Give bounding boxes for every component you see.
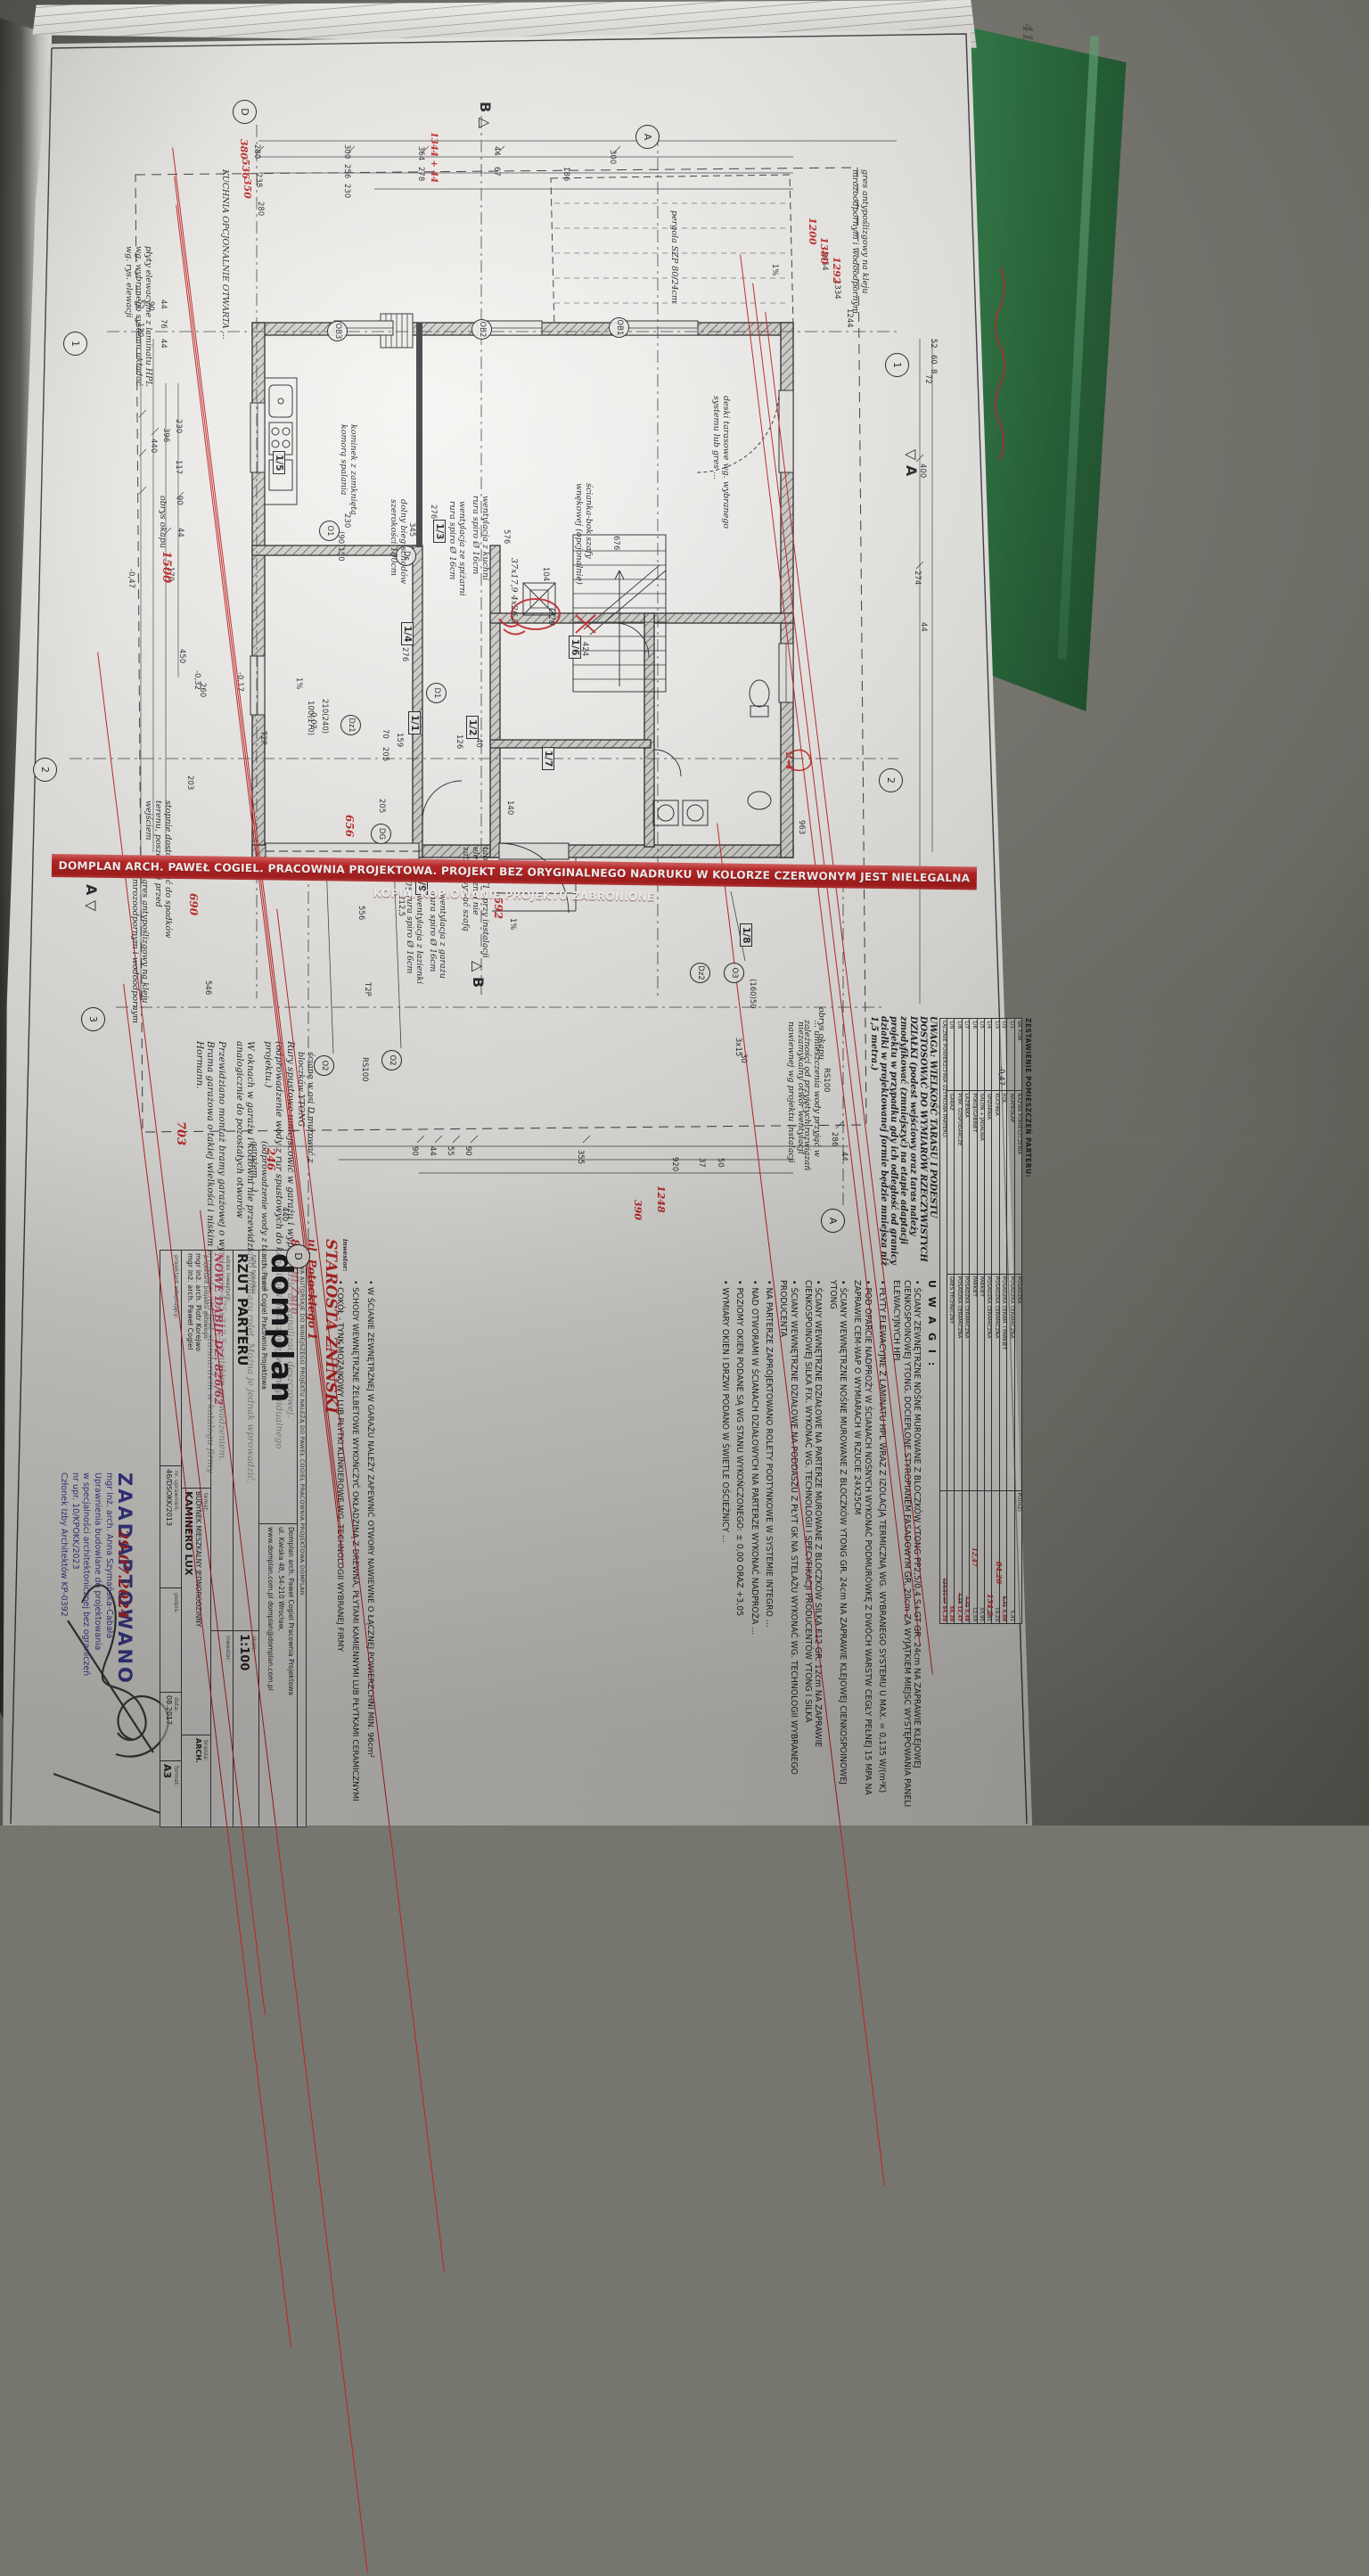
dimension-label: 920 xyxy=(670,1157,679,1171)
extra-bullet-notes: • W ŚCIANIE ZEWNĘTRZNEJ W GARAŻU NALEŻY … xyxy=(329,1280,374,1815)
stamp-line: Członek Izby Architektów KP-0392 xyxy=(57,1473,69,1793)
photo-of-floor-plan: { "meta": { "page_number": "41" }, "copy… xyxy=(0,0,1369,1825)
room-schedule-title: ZESTAWIENIE POMIESZCZEŃ PARTERU: xyxy=(1024,1018,1032,1624)
red-correction: 84,20 xyxy=(995,1562,1004,1584)
dimension-label: 280 xyxy=(256,201,265,1571)
room-tag: 1/4 xyxy=(401,622,414,645)
uwagi-item: • NA PARTERZE ZAPROJEKTOWANO ROLETY PODT… xyxy=(764,1280,774,1815)
schedule-row: 1/5SALON + JADALNIAPARKIET33,95 xyxy=(977,1019,984,1624)
schedule-cell: 1/5 xyxy=(977,1019,984,1091)
reference-circle: O2 xyxy=(314,1055,334,1076)
dimension-label: 300 xyxy=(342,144,351,159)
dimension-label: (160)50 xyxy=(748,979,757,1009)
uwagi-item: • POZIOMY OKIEN PODANE SĄ WG STANU WYKOŃ… xyxy=(734,1280,744,1815)
red-correction: 390 xyxy=(632,1200,644,1220)
red-correction: 134,2 xyxy=(986,1594,995,1616)
schedule-cell: GRES TECHNICZNY xyxy=(947,1274,954,1490)
dimension-label: 72 xyxy=(923,374,932,384)
room-tag: 1/2 xyxy=(466,716,479,739)
branch-value: ARCH. xyxy=(194,1738,202,1763)
axis-circle: 1 xyxy=(63,332,87,356)
schedule-pu-value: 5,41 xyxy=(1009,1611,1014,1621)
schedule-row: 1/4SPIŻARNIAPOSADZKA CERAMICZNA2,81 xyxy=(984,1019,991,1624)
schedule-pu-value: 4,18 xyxy=(956,1593,962,1604)
dimension-label: 159 xyxy=(395,733,404,747)
office-line3: www.domplan.com.pl domplan@domplan.com.p… xyxy=(267,1527,275,1691)
schedule-footer-red: 84,20 xyxy=(941,1605,947,1621)
schedule-footer-value: 123,31 m² xyxy=(941,1578,947,1604)
dimension-label: 55 xyxy=(446,1146,455,1156)
room-tag: 1/1 xyxy=(408,711,421,734)
dimension-label: 44 xyxy=(159,299,168,309)
room-schedule: ZESTAWIENIE POMIESZCZEŃ PARTERU: NR POM.… xyxy=(939,1018,1032,1624)
dimension-label: 1244 xyxy=(845,308,854,1678)
dimension-label: 40 xyxy=(474,738,483,748)
schedule-row: 1/9GARAŻGRES TECHNICZNY 36,20 xyxy=(947,1019,954,1624)
dimension-label: 450 xyxy=(177,649,186,2018)
schedule-cell: POSADZKA CERAMICZNA xyxy=(992,1274,999,1490)
schedule-column-header: PU(m2) xyxy=(1014,1490,1021,1623)
reference-circle: O1 xyxy=(319,521,340,541)
office-cell: Domplan arch. Paweł Cogiel Pracownia Pro… xyxy=(259,1524,297,1824)
axis-circle: D xyxy=(286,1244,310,1268)
dimension-label: 230 xyxy=(174,419,183,433)
red-correction: 1380 xyxy=(818,237,830,265)
schedule-cell: WIATROŁAP xyxy=(1007,1091,1014,1274)
schedule-cell: HOL xyxy=(999,1091,1006,1274)
uwagi-item: • ŚCIANY WEWNĘTRZNE DZIAŁOWE NA PODDASZU… xyxy=(778,1280,799,1815)
red-correction: 380 xyxy=(238,139,250,160)
plan-note: gres antypoślizgowy na kleju mrozoodporn… xyxy=(850,169,870,321)
bullet-note: • COKÓŁ - TYNK MOZAIKOWY LUB PŁYTKI KLIN… xyxy=(334,1280,344,1815)
schedule-cell: SPIŻARNIA xyxy=(984,1091,991,1274)
dimension-label: 44 xyxy=(176,528,184,537)
dimension-label: 424 xyxy=(580,642,589,656)
investor-label: inwestor: xyxy=(341,1239,349,1271)
axis-circle: D xyxy=(233,100,257,124)
reference-circle: Dz1 xyxy=(340,715,361,735)
dimension-label: 1% xyxy=(508,918,517,931)
schedule-cell: 1/8 xyxy=(955,1019,962,1091)
schedule-cell: POSADZKA CERAMICZNA xyxy=(984,1274,991,1490)
red-correction: 656 xyxy=(343,815,356,837)
dimension-label: 76 xyxy=(159,319,168,329)
dimension-label: 50 xyxy=(716,1158,725,1168)
red-correction: 12,47 xyxy=(971,1547,979,1567)
uwagi-item: • POD OPARCIE NADPROŻY W ŚCIANACH NOŚNYC… xyxy=(852,1280,873,1815)
schedule-cell: POSADZKA CERAMICZNA xyxy=(962,1274,969,1490)
plan-note: wentylacja z kuchni rura spiro Ø 16cm xyxy=(471,496,490,594)
schedule-cell: POSADZKA CERAMICZNA xyxy=(1007,1274,1014,1490)
dimension-label: 274 xyxy=(913,570,922,585)
red-correction: 1248 xyxy=(655,1185,667,1213)
plan-note: KUCHNIA OPCJONALNIE OTWARTA ... xyxy=(220,169,230,365)
schedule-row: 1/7ŁAZIENKAPOSADZKA CERAMICZNA4,42 5,48 xyxy=(962,1019,969,1624)
schedule-pu-red: 4,00 xyxy=(1001,1607,1006,1621)
dimension-label: 44 xyxy=(492,146,501,156)
schedule-pu-value: 4,42 xyxy=(963,1596,969,1607)
schedule-column-header: NAZWA POMIESZCZENIA xyxy=(1014,1091,1021,1274)
schedule-cell: PARKIET xyxy=(970,1274,977,1490)
schedule-cell: PARKIET xyxy=(977,1274,984,1490)
dimension-label: 546 xyxy=(203,980,212,2350)
dimension-label: 278 xyxy=(416,167,425,181)
axis-circle: 2 xyxy=(33,758,57,782)
logo-cell: domplan arch. Paweł Cogiel Pracownia Pro… xyxy=(259,1251,297,1524)
dimension-label: 186 xyxy=(562,167,570,181)
format-value: A3 xyxy=(161,1764,173,1778)
plan-note: dolny bieg schodów szerokości 100cm xyxy=(389,499,408,602)
red-correction: 536 xyxy=(240,159,251,179)
dimension-label: 556 xyxy=(357,906,365,2275)
scale-value: 1:100 xyxy=(237,1634,250,1670)
axis-circle: A xyxy=(635,125,660,149)
adaptation-stamp: ZAADAPTOWANO 29.07.2024 mgr inż. arch. A… xyxy=(57,1473,135,1793)
plan-note: pergola SZP 80/24cm xyxy=(669,210,679,304)
bullet-note: • W ŚCIANIE ZEWNĘTRZNEJ W GARAŻU NALEŻY … xyxy=(365,1280,374,1815)
dimension-label: 1454 xyxy=(820,251,829,1620)
schedule-column-header: POSADZKA xyxy=(1014,1274,1021,1490)
schedule-cell: GARAŻ xyxy=(947,1091,954,1274)
room-tag: 1/5 xyxy=(273,451,285,474)
rotated-text-layer: Rury spustowe umiejscowić w garażu i wyp… xyxy=(0,0,1369,1825)
room-tag: 1/7 xyxy=(542,747,554,770)
schedule-cell: SALON + JADALNIA xyxy=(977,1091,984,1274)
red-correction: 1292 xyxy=(831,257,842,284)
dimension-label: 345 xyxy=(407,522,416,537)
schedule-pu-red: 36,20 xyxy=(948,1605,954,1621)
dimension-label: 676 xyxy=(611,536,620,550)
schedule-row: 1/8POM. GOSPODARCZEPOSADZKA CERAMICZNA4,… xyxy=(955,1019,962,1624)
schedule-pu-red: 5,48 xyxy=(963,1607,969,1621)
dimension-label: 1334 xyxy=(832,280,841,1649)
schedule-cell: POM. GOSPODARCZE xyxy=(955,1091,962,1274)
schedule-cell: POSADZKA CERAM. I PARKIET xyxy=(999,1274,1006,1490)
dimension-label: -0,47 xyxy=(127,569,135,588)
dimension-label: 286 xyxy=(830,1132,839,1146)
red-correction: 703 xyxy=(174,1121,187,1145)
schedule-row: 1/6POKÓJ/GABINETPARKIET12,59 xyxy=(970,1019,977,1624)
dimension-label: 90 xyxy=(463,1146,472,1156)
stamp-lines: mgr inż. arch. Anna Szymańska-CabałaUpra… xyxy=(57,1473,114,1793)
building-type: BUDYNEK MIESZKALNY JEDNORODZINNY xyxy=(194,1491,202,1628)
dimension-label: 396 xyxy=(161,428,170,442)
room-tag: 1/3 xyxy=(433,520,446,543)
dimension-label: 60 xyxy=(929,355,938,365)
dimension-label: 70 xyxy=(381,729,389,739)
dimension-label: 1% xyxy=(770,264,779,276)
stamp-line: w specjalności architektonicznej bez ogr… xyxy=(80,1473,92,1793)
red-correction: 2-4 xyxy=(783,752,795,770)
plan-note: ... umieszczenia wody przyjąć w zależnoś… xyxy=(802,1020,822,1189)
red-correction: 1344 + 44 xyxy=(429,132,439,183)
stamp-line: Uprawnienia budowlane do projektowania xyxy=(91,1473,102,1793)
dimension-label: 100(170) xyxy=(306,701,315,735)
plan-note: ścianka-bok szafy wnękowej (opcjonalnie) xyxy=(574,483,594,586)
red-correction: 1200 xyxy=(807,217,818,245)
dimension-label: 260 xyxy=(198,683,207,697)
schedule-cell: 5,41 4,00 xyxy=(999,1490,1006,1623)
dimension-label: 37 xyxy=(697,1158,706,1168)
schedule-cell: 36,20 xyxy=(947,1490,954,1623)
license-value: 46/DSOKK/2013 xyxy=(165,1469,173,1526)
schedule-row: 1/1WIATROŁAPPOSADZKA CERAMICZNA5,41 xyxy=(1007,1019,1014,1624)
section-marker: B △ xyxy=(477,102,494,128)
copyright-line: PRAWA AUTORSKIE DO NINIEJSZEGO PROJEKTU … xyxy=(298,1251,306,1826)
schedule-row: 1/3KUCHNIAPOSADZKA CERAMICZNA10,29 xyxy=(992,1019,999,1624)
dimension-label: 44 xyxy=(840,1152,848,1161)
dimension-label: 276 xyxy=(429,505,438,519)
stamp-line: nr upr. 10/KPOKK/2023 xyxy=(69,1473,80,1793)
dimension-label: 440 xyxy=(149,439,158,453)
room-schedule-table: NR POM.NAZWA POMIESZCZENIAPOSADZKAPU(m2)… xyxy=(939,1018,1022,1624)
schedule-pu-value: 5,41 xyxy=(1001,1596,1006,1607)
dimension-label: 230 xyxy=(342,184,351,198)
stamp-line: mgr inż. arch. Anna Szymańska-Cabała xyxy=(102,1473,114,1793)
dimension-label: 205 xyxy=(377,799,386,813)
dimension-label: 67 xyxy=(492,167,501,176)
dimension-label: 44 xyxy=(159,339,168,349)
plan-note: wentylacja z łazienki rura spiro Ø 16cm xyxy=(405,895,424,993)
schedule-row: 1/2HOLPOSADZKA CERAM. I PARKIET5,41 4,00 xyxy=(999,1019,1006,1624)
axis-circle: 1 xyxy=(885,353,909,377)
plan-note: wentylacja z garażu rura spiro Ø 16cm xyxy=(428,893,447,991)
uwagi-header: U W A G I : xyxy=(926,1280,938,1815)
designer-2: mgr inż. arch. Paweł Cogiel xyxy=(186,1253,194,1350)
dimension-label: 126 xyxy=(455,734,463,749)
dimension-label: 8 xyxy=(929,369,938,373)
dimension-label: 44 xyxy=(428,1146,437,1156)
room-tag: 1/6 xyxy=(569,636,581,659)
schedule-cell: 5,41 xyxy=(1007,1490,1014,1623)
plan-note: Ø20 xyxy=(546,608,556,644)
schedule-cell: POKÓJ/GABINET xyxy=(970,1091,977,1274)
schedule-cell: 1/4 xyxy=(984,1019,991,1091)
schedule-pu-value: 12,59 xyxy=(971,1607,977,1621)
reference-circle: OB3 xyxy=(327,321,348,341)
plan-note: 37x17,9 4x26,5 xyxy=(509,558,519,629)
schedule-cell: 1/9 xyxy=(947,1019,954,1091)
axis-circle: 3 xyxy=(81,1007,105,1031)
dimension-label: 440 xyxy=(280,1207,289,2576)
red-correction: 690 xyxy=(187,893,200,915)
dimension-label: 576 xyxy=(502,529,511,544)
reference-circle: O2 xyxy=(381,1050,402,1071)
dimension-label: 90 xyxy=(175,496,184,505)
dimension-label: 300 xyxy=(608,150,617,164)
dimension-label: 364 xyxy=(416,146,425,160)
dimension-label: 256 xyxy=(342,164,351,178)
page-number: 41 xyxy=(1020,23,1036,42)
plan-note: płyty elewacyjne z laminatu HPL wg. wybr… xyxy=(123,246,153,393)
schedule-cell: KUCHNIA xyxy=(992,1091,999,1274)
dimension-label: T2P xyxy=(258,731,267,745)
plan-note: kominek z zamkniętą komorą spalania xyxy=(339,424,358,518)
dimension-label: 104 xyxy=(541,567,550,581)
dimension-label: 355 xyxy=(576,1150,585,1164)
dimension-label: 90 xyxy=(410,1146,419,1156)
dimension-label: 203 xyxy=(185,775,194,790)
schedule-cell: POSADZKA CERAMICZNA xyxy=(955,1274,962,1490)
schedule-pu-red: 12,47 xyxy=(956,1604,962,1621)
reference-circle: OB1 xyxy=(609,317,629,338)
section-marker: A ▽ xyxy=(83,884,100,911)
schedule-cell: ŁAZIENKA xyxy=(962,1091,969,1274)
reference-circle: Dz2 xyxy=(690,963,710,983)
reference-circle: D1 xyxy=(426,683,447,703)
uwagi-item: • WYMIARY OKIEN I DRZWI PODANO W ŚWIETLE… xyxy=(720,1280,730,1815)
drawing-title: RZUT PARTERU xyxy=(234,1253,250,1628)
section-marker: ▽ A xyxy=(903,449,920,476)
plan-note: wentylacja ze spiżarni rura spiro Ø 16cm xyxy=(447,501,467,599)
schedule-footer-label: ŁĄCZNIE POWIERZCHNIA UŻYTKOWA PARTERU: xyxy=(939,1019,947,1491)
dimension-label: 210(240) xyxy=(320,699,329,734)
plan-note: ścianę w osi D murować z bloczków YTONG xyxy=(296,1052,316,1194)
red-correction: 350 xyxy=(242,178,253,199)
schedule-cell: 1/6 xyxy=(970,1019,977,1091)
dimension-label: 1% xyxy=(294,677,303,690)
schedule-cell: 4,18 12,47 xyxy=(955,1490,962,1623)
schedule-cell: 1/7 xyxy=(962,1019,969,1091)
room-tag: 1/8 xyxy=(740,923,752,947)
designer-1: mgr inż. arch. Piotr Korejwo xyxy=(194,1253,202,1351)
dimension-label: 117 xyxy=(174,460,183,474)
axis-circle: A xyxy=(821,1209,845,1233)
plan-note: deski tarasowe wg. wybranego systemu lub… xyxy=(711,396,731,538)
axis-circle: 2 xyxy=(879,768,903,792)
schedule-pu-value: 33,95 xyxy=(979,1607,984,1621)
dimension-label: 140 xyxy=(505,800,514,815)
red-correction: 1500 xyxy=(160,551,173,583)
dimension-label: 276 xyxy=(400,647,409,661)
uwagi-item: • NAD OTWORAMI W ŚCIANACH DZIAŁOWYCH NA … xyxy=(749,1280,758,1815)
red-correction: 246 xyxy=(265,1148,277,1170)
stamp-date-red: 29.07.2024 xyxy=(115,1530,132,1619)
reference-circle: DG xyxy=(371,824,391,844)
date-value: 08.2017 xyxy=(165,1695,173,1725)
dimension-label: 205 xyxy=(381,747,389,761)
reference-circle: OB2 xyxy=(471,319,492,340)
dimension-label: -0,47 xyxy=(996,1066,1005,1086)
schedule-cell: 4,42 5,48 xyxy=(962,1490,969,1623)
dimension-label: 52 xyxy=(929,339,938,349)
reference-circle: O3 xyxy=(724,963,744,983)
schedule-cell: 1/1 xyxy=(1007,1019,1014,1091)
dimension-label: 44 xyxy=(919,622,928,632)
schedule-column-header: NR POM. xyxy=(1014,1019,1021,1091)
